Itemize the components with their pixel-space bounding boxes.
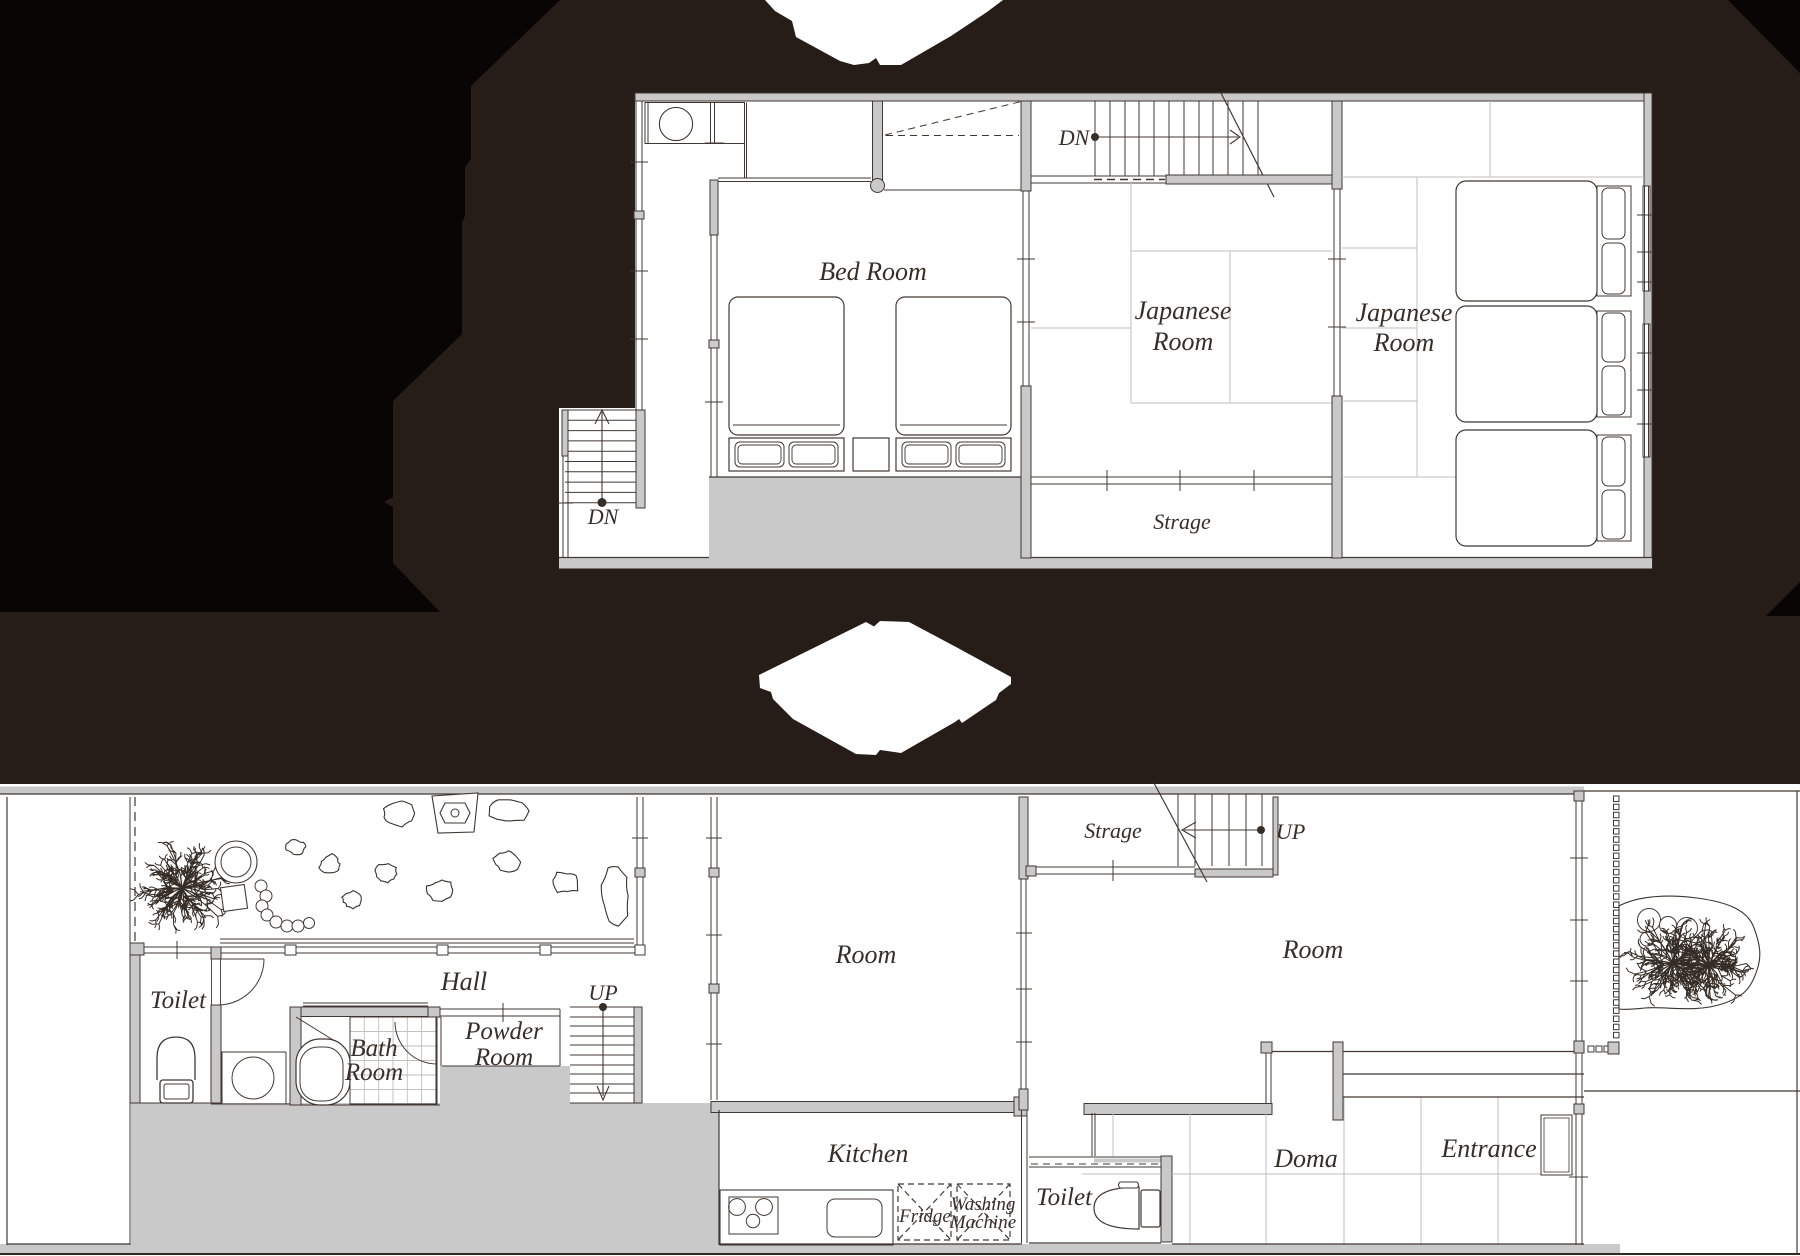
svg-text:Hall: Hall (440, 967, 487, 996)
svg-text:Bed Room: Bed Room (819, 257, 927, 286)
svg-text:Room: Room (835, 940, 897, 969)
svg-text:Room: Room (1282, 935, 1344, 964)
svg-text:UP: UP (1276, 819, 1305, 844)
svg-text:Room: Room (474, 1044, 533, 1071)
svg-text:Room: Room (1373, 328, 1435, 357)
svg-text:Powder: Powder (464, 1018, 543, 1045)
svg-text:Room: Room (1152, 327, 1214, 356)
svg-text:Strage: Strage (1153, 509, 1211, 534)
svg-text:DN: DN (1058, 125, 1091, 150)
svg-text:Kitchen: Kitchen (827, 1139, 909, 1168)
svg-text:Doma: Doma (1273, 1144, 1338, 1173)
svg-text:Machine: Machine (949, 1212, 1016, 1233)
svg-text:Entrance: Entrance (1440, 1134, 1536, 1163)
svg-text:Japanese: Japanese (1356, 298, 1453, 327)
svg-text:DN: DN (587, 504, 620, 529)
svg-text:Toilet: Toilet (1036, 1184, 1093, 1211)
svg-text:Japanese: Japanese (1135, 296, 1232, 325)
svg-text:Bath: Bath (350, 1035, 397, 1062)
svg-text:Toilet: Toilet (150, 987, 207, 1014)
svg-text:UP: UP (588, 980, 617, 1005)
svg-text:Fridge: Fridge (898, 1206, 951, 1227)
svg-text:Room: Room (344, 1059, 403, 1086)
svg-text:Strage: Strage (1084, 818, 1142, 843)
